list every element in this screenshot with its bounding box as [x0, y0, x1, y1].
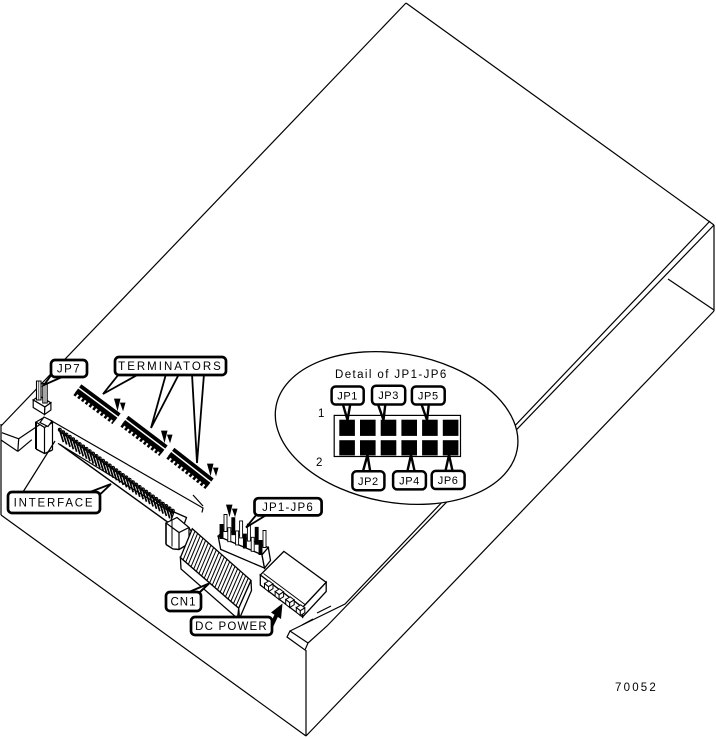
svg-text:CN1: CN1 — [170, 597, 196, 609]
svg-text:Detail of JP1-JP6: Detail of JP1-JP6 — [335, 369, 448, 381]
svg-text:JP3: JP3 — [378, 390, 399, 402]
svg-text:JP4: JP4 — [399, 475, 420, 487]
svg-text:TERMINATORS: TERMINATORS — [118, 361, 223, 373]
svg-text:JP6: JP6 — [438, 475, 459, 487]
svg-text:2: 2 — [316, 457, 322, 469]
svg-text:DC POWER: DC POWER — [195, 621, 268, 633]
svg-text:INTERFACE: INTERFACE — [14, 498, 95, 510]
svg-text:JP1-JP6: JP1-JP6 — [262, 502, 314, 514]
svg-text:JP7: JP7 — [57, 364, 81, 376]
svg-text:1: 1 — [318, 408, 324, 420]
svg-text:JP1: JP1 — [337, 391, 358, 403]
svg-text:70052: 70052 — [615, 682, 658, 694]
svg-text:JP5: JP5 — [418, 391, 439, 403]
svg-text:JP2: JP2 — [358, 476, 379, 488]
